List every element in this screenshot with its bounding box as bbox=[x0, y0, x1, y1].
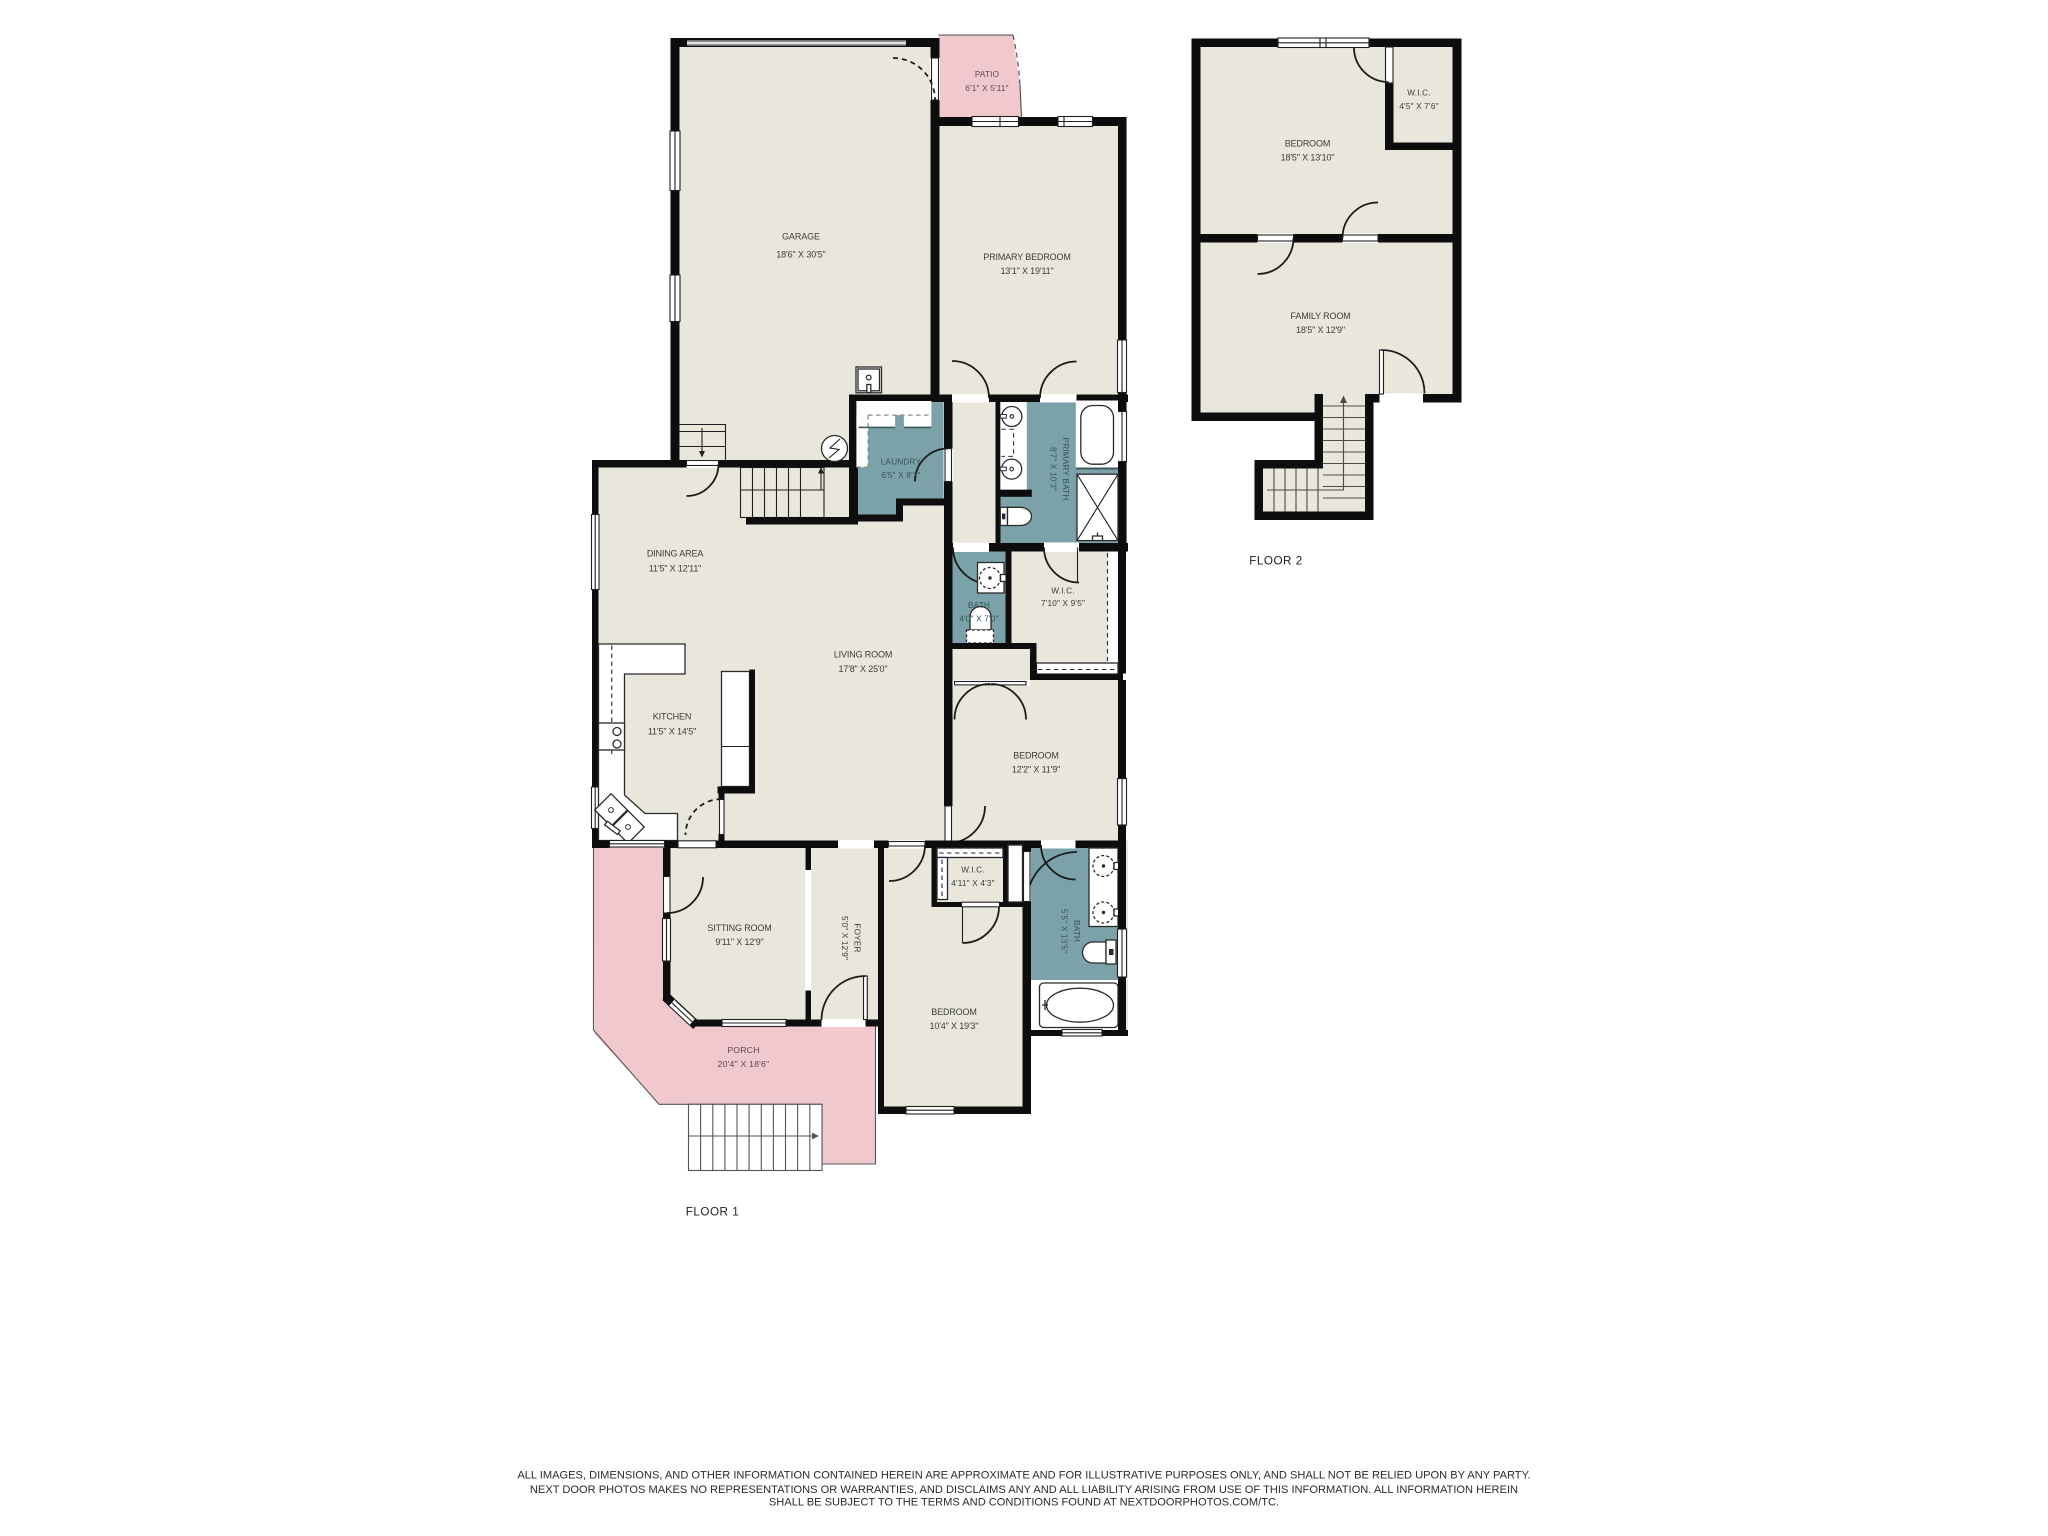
svg-text:4'0" X 7'0": 4'0" X 7'0" bbox=[959, 615, 998, 624]
svg-text:FLOOR 1: FLOOR 1 bbox=[686, 1206, 740, 1219]
svg-text:BATH: BATH bbox=[968, 601, 990, 610]
svg-text:6'5" X 8'2": 6'5" X 8'2" bbox=[881, 471, 920, 480]
svg-text:BEDROOM: BEDROOM bbox=[1285, 139, 1330, 149]
svg-text:12'2" X 11'9": 12'2" X 11'9" bbox=[1012, 765, 1060, 775]
svg-text:FLOOR 2: FLOOR 2 bbox=[1249, 555, 1303, 568]
svg-text:PRIMARY BEDROOM: PRIMARY BEDROOM bbox=[983, 252, 1070, 262]
svg-text:FAMILY ROOM: FAMILY ROOM bbox=[1290, 311, 1350, 321]
svg-text:PORCH: PORCH bbox=[727, 1045, 759, 1055]
svg-text:SHALL BE SUBJECT TO THE TERMS: SHALL BE SUBJECT TO THE TERMS AND CONDIT… bbox=[769, 1497, 1279, 1509]
svg-text:20'4" X 18'6": 20'4" X 18'6" bbox=[718, 1059, 770, 1069]
svg-text:11'5" X 14'5": 11'5" X 14'5" bbox=[648, 727, 696, 737]
svg-text:17'8" X 25'0": 17'8" X 25'0" bbox=[839, 664, 888, 674]
svg-text:FOYER: FOYER bbox=[853, 923, 862, 952]
svg-text:18'5" X 13'10": 18'5" X 13'10" bbox=[1281, 153, 1335, 163]
svg-text:9'11" X 12'9": 9'11" X 12'9" bbox=[715, 937, 763, 947]
svg-text:SITTING ROOM: SITTING ROOM bbox=[707, 923, 771, 933]
svg-text:7'10" X 9'5": 7'10" X 9'5" bbox=[1041, 599, 1085, 608]
svg-text:W.I.C.: W.I.C. bbox=[961, 866, 985, 875]
svg-text:GARAGE: GARAGE bbox=[782, 232, 820, 242]
svg-text:10'4" X 19'3": 10'4" X 19'3" bbox=[930, 1021, 979, 1031]
svg-text:KITCHEN: KITCHEN bbox=[653, 712, 691, 722]
svg-text:LAUNDRY: LAUNDRY bbox=[881, 458, 922, 467]
svg-text:LIVING ROOM: LIVING ROOM bbox=[834, 650, 892, 660]
svg-text:5'0" X 12'9": 5'0" X 12'9" bbox=[840, 916, 849, 960]
svg-text:PRIMARY BATH: PRIMARY BATH bbox=[1061, 438, 1070, 501]
svg-text:4'5" X 7'6": 4'5" X 7'6" bbox=[1399, 102, 1438, 111]
svg-text:BEDROOM: BEDROOM bbox=[1013, 751, 1058, 761]
svg-text:BATH: BATH bbox=[1072, 920, 1081, 942]
svg-text:PATIO: PATIO bbox=[975, 70, 999, 79]
svg-text:18'6" X 30'5": 18'6" X 30'5" bbox=[776, 250, 826, 260]
svg-text:DINING AREA: DINING AREA bbox=[647, 549, 704, 559]
svg-text:W.I.C.: W.I.C. bbox=[1051, 587, 1075, 596]
svg-text:6'1" X 5'11": 6'1" X 5'11" bbox=[965, 84, 1009, 93]
svg-text:W.I.C.: W.I.C. bbox=[1407, 89, 1431, 98]
svg-text:11'5" X 12'11": 11'5" X 12'11" bbox=[649, 564, 701, 574]
svg-text:18'5" X 12'9": 18'5" X 12'9" bbox=[1296, 325, 1345, 335]
svg-text:NEXT DOOR PHOTOS MAKES NO REPR: NEXT DOOR PHOTOS MAKES NO REPRESENTATION… bbox=[530, 1484, 1518, 1496]
svg-text:5'5" X 13'5": 5'5" X 13'5" bbox=[1060, 909, 1069, 953]
svg-text:4'11" X 4'3": 4'11" X 4'3" bbox=[951, 879, 995, 888]
svg-text:ALL IMAGES, DIMENSIONS, AND OT: ALL IMAGES, DIMENSIONS, AND OTHER INFORM… bbox=[517, 1470, 1530, 1482]
svg-text:BEDROOM: BEDROOM bbox=[931, 1007, 976, 1017]
svg-text:8'7" X 10'3": 8'7" X 10'3" bbox=[1049, 447, 1058, 491]
svg-text:13'1" X 19'11": 13'1" X 19'11" bbox=[1000, 266, 1053, 276]
